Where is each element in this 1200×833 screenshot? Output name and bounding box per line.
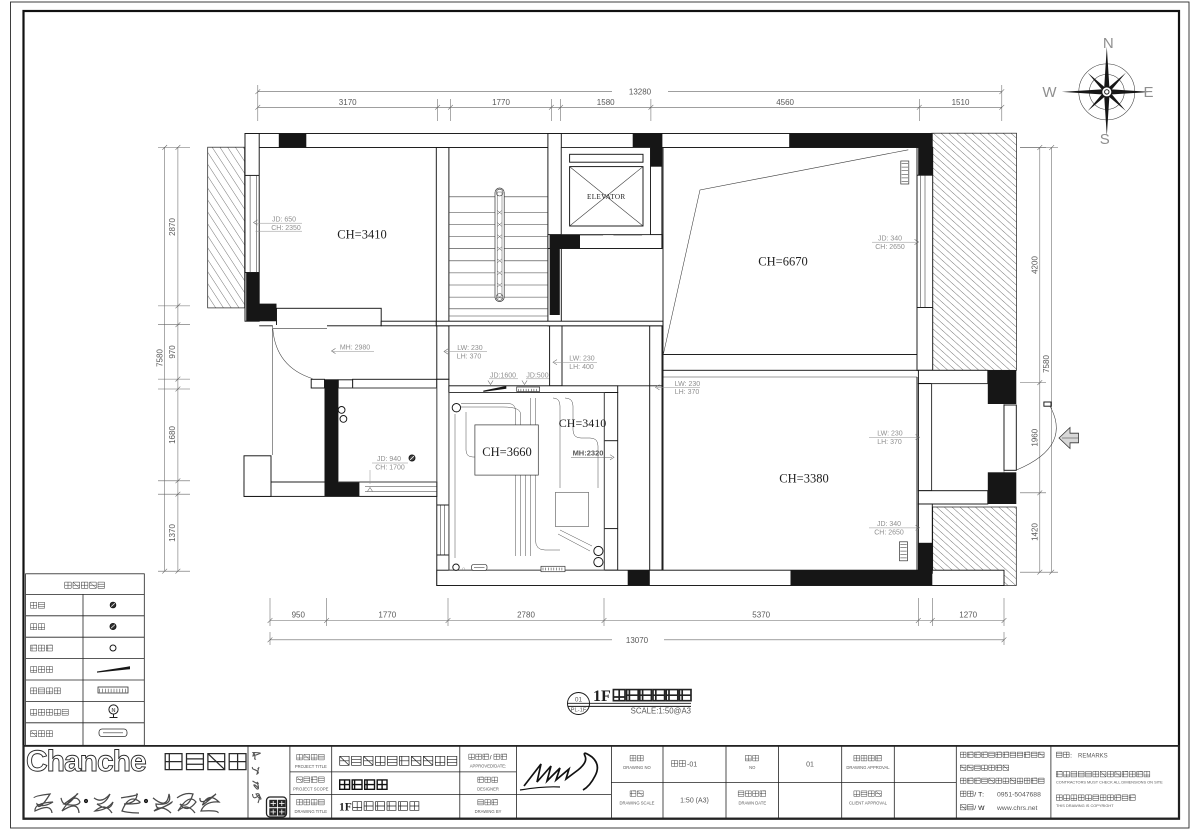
svg-text:CONTRACTORS MUST CHECK ALL DIM: CONTRACTORS MUST CHECK ALL DIMENSIONS ON…: [1056, 780, 1163, 785]
svg-text:JD: 940: JD: 940: [377, 456, 401, 463]
svg-text:DRAWING BY: DRAWING BY: [475, 809, 502, 814]
svg-text:13280: 13280: [629, 88, 652, 97]
svg-text:CH=6670: CH=6670: [758, 255, 807, 269]
svg-text:JD: 340: JD: 340: [878, 236, 902, 243]
svg-text:13070: 13070: [626, 636, 649, 645]
svg-text:CH=3380: CH=3380: [779, 472, 828, 486]
svg-text:CH=3660: CH=3660: [482, 445, 531, 459]
svg-text:PROJECT TITLE: PROJECT TITLE: [295, 764, 327, 769]
svg-text:LW: 230: LW: 230: [457, 345, 483, 352]
svg-text:www.chrs.net: www.chrs.net: [996, 805, 1038, 812]
svg-text:ELEVATOR: ELEVATOR: [587, 193, 625, 201]
svg-text:LH: 400: LH: 400: [569, 364, 594, 371]
svg-text:JD:500: JD:500: [526, 372, 548, 379]
svg-text:1370: 1370: [168, 524, 177, 542]
svg-text:CH: 2350: CH: 2350: [271, 225, 301, 232]
svg-text:LH: 370: LH: 370: [457, 353, 482, 360]
svg-text:LH: 370: LH: 370: [675, 389, 700, 396]
svg-text:1680: 1680: [168, 426, 177, 444]
svg-text::: :: [982, 805, 984, 812]
svg-text:CH=3410: CH=3410: [559, 416, 606, 430]
svg-text:01: 01: [806, 762, 814, 769]
svg-text:1420: 1420: [1030, 523, 1039, 541]
svg-text:5370: 5370: [752, 611, 770, 620]
svg-text:CH: 2650: CH: 2650: [875, 244, 905, 251]
svg-text:/: /: [490, 755, 492, 762]
svg-text:2780: 2780: [517, 611, 535, 620]
svg-text:2870: 2870: [168, 218, 177, 236]
svg-text:PL-1F: PL-1F: [571, 708, 587, 714]
svg-text:THIS DRAWING IS COPYRIGHT: THIS DRAWING IS COPYRIGHT: [1056, 803, 1114, 808]
svg-text:W: W: [1042, 84, 1057, 101]
svg-text:DESIGNER: DESIGNER: [477, 787, 499, 792]
svg-text:SCALE:1:50@A3: SCALE:1:50@A3: [631, 707, 691, 716]
svg-text:950: 950: [292, 611, 306, 620]
svg-text:DRAWING APPROVAL: DRAWING APPROVAL: [846, 765, 890, 770]
svg-text:1F: 1F: [593, 688, 611, 705]
svg-text:LW: 230: LW: 230: [675, 381, 701, 388]
svg-text:1770: 1770: [378, 611, 396, 620]
svg-text:4200: 4200: [1030, 256, 1039, 274]
svg-text:APPROVED/DATE:: APPROVED/DATE:: [470, 764, 506, 769]
svg-text:LH: 370: LH: 370: [877, 439, 902, 446]
svg-text:DRAWN DATE: DRAWN DATE: [738, 801, 766, 806]
svg-text:7580: 7580: [155, 349, 164, 367]
svg-text:-01: -01: [687, 762, 697, 769]
svg-text:Chanche: Chanche: [26, 745, 146, 778]
svg-text:JD: 650: JD: 650: [272, 217, 296, 224]
svg-text:3170: 3170: [339, 98, 357, 107]
svg-text:S: S: [1100, 131, 1110, 148]
svg-text:CH=3410: CH=3410: [337, 228, 386, 242]
svg-text:1580: 1580: [597, 98, 615, 107]
svg-text:DRAWING TITLE: DRAWING TITLE: [295, 809, 328, 814]
svg-text:N: N: [112, 708, 116, 714]
svg-text:CH: 2650: CH: 2650: [874, 530, 904, 537]
svg-text:1F: 1F: [339, 802, 352, 814]
svg-text:N: N: [1103, 35, 1114, 52]
svg-text:1:50 (A3): 1:50 (A3): [680, 798, 709, 805]
svg-text:NO: NO: [749, 765, 756, 770]
svg-text:1270: 1270: [959, 611, 977, 620]
svg-text:7580: 7580: [1042, 355, 1051, 373]
svg-text::: :: [982, 792, 984, 799]
svg-text::: :: [1070, 753, 1072, 760]
svg-text:01: 01: [575, 697, 583, 704]
svg-text:0951-5047688: 0951-5047688: [997, 792, 1041, 799]
svg-text:CH: 1700: CH: 1700: [375, 465, 405, 472]
svg-text:1510: 1510: [952, 98, 970, 107]
svg-text:DRAWING NO: DRAWING NO: [623, 765, 651, 770]
svg-text:/: /: [974, 792, 976, 799]
svg-text:MH:2320: MH:2320: [573, 449, 604, 458]
svg-text:DRAWING SCALE: DRAWING SCALE: [620, 801, 655, 806]
svg-text:CLIENT APPROVAL: CLIENT APPROVAL: [849, 801, 888, 806]
svg-text:JD:1600: JD:1600: [490, 372, 516, 379]
svg-text:REMARKS: REMARKS: [1078, 754, 1108, 760]
svg-text:JD: 340: JD: 340: [877, 521, 901, 528]
svg-text:4560: 4560: [776, 98, 794, 107]
svg-text:E: E: [1143, 84, 1153, 101]
svg-text:LW: 230: LW: 230: [569, 356, 595, 363]
svg-text:LW: 230: LW: 230: [877, 431, 903, 438]
svg-text:970: 970: [168, 345, 177, 359]
svg-text:1960: 1960: [1030, 428, 1039, 446]
svg-text:/: /: [974, 805, 976, 812]
svg-text:MH: 2980: MH: 2980: [340, 344, 370, 351]
svg-text:1770: 1770: [492, 98, 510, 107]
svg-text:PROJECT SCOPE: PROJECT SCOPE: [293, 787, 328, 792]
